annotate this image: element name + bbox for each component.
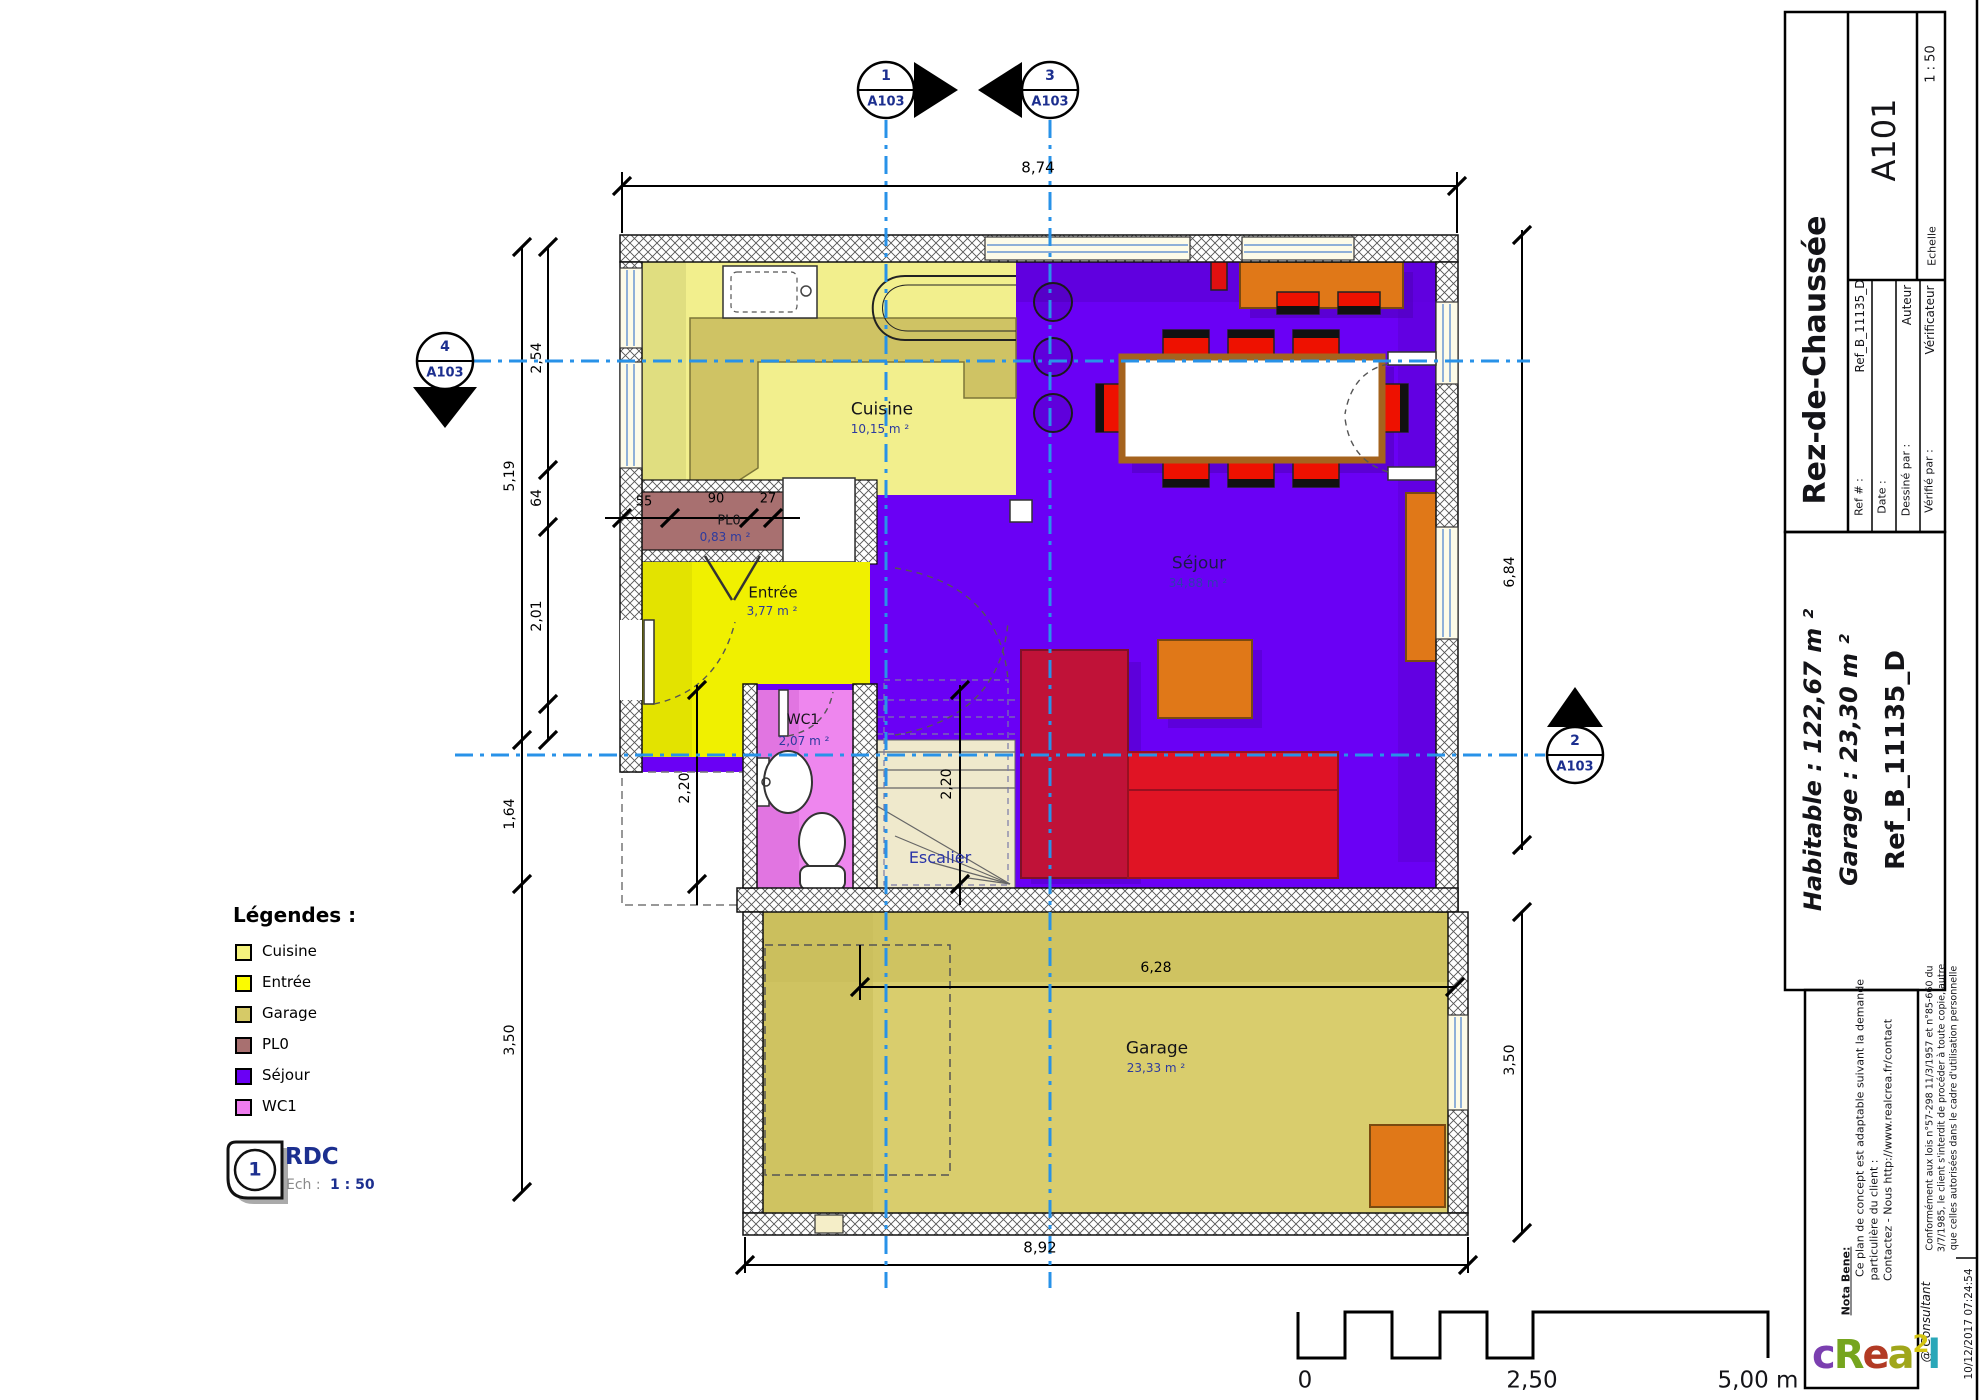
room-area-sejour: 34,88 m ² <box>1169 577 1227 589</box>
logo-letter: R <box>1834 1332 1863 1378</box>
titleblock-checked-value: Vérificateur <box>1924 285 1936 354</box>
scalebar-end: 5,00 m <box>1718 1370 1799 1393</box>
room-label-entree: Entrée <box>748 586 797 601</box>
titleblock-checked-label: Vérifié par : <box>1924 449 1935 513</box>
marker3-number: 3 <box>1045 69 1055 83</box>
crea-logo: cRea2l <box>1812 1330 1939 1378</box>
titleblock-sheet-number: A101 <box>1868 99 1900 182</box>
titleblock-drawn-value: Auteur <box>1901 285 1913 325</box>
marker1-number: 1 <box>881 69 891 83</box>
garage-cabinet <box>1370 1125 1445 1207</box>
titleblock-garage-area: Garage : 23,30 m ² <box>1837 634 1861 886</box>
door-leaf <box>1388 467 1436 480</box>
legend-item-cuisine: Cuisine <box>262 944 317 959</box>
dim-pl0-a: 55 <box>636 496 653 509</box>
scalebar-mid: 2,50 <box>1506 1370 1557 1393</box>
legend-swatch-cuisine <box>235 944 252 961</box>
stamp-title: RDC <box>285 1146 339 1169</box>
dim-left-lower: 1,64 <box>503 798 517 829</box>
drawing-sheet: 8,74 8,92 6,28 55 90 27 6,84 3,50 5,19 1… <box>0 0 1980 1400</box>
nota-line1: Ce plan de concept est adaptable suivant… <box>1855 979 1866 1277</box>
marker4-sheet: A103 <box>426 367 463 380</box>
dim-pl0-b: 90 <box>708 493 725 506</box>
dim-left-garage: 3,50 <box>503 1024 517 1055</box>
scale-bar <box>1298 1312 1768 1358</box>
section-marker-1 <box>858 62 958 118</box>
marker1-sheet: A103 <box>867 96 904 109</box>
dim-hall-depth: 2,20 <box>678 772 692 803</box>
titleblock-floor-title: Rez-de-Chaussée <box>1801 215 1831 504</box>
dim-left-c: 2,01 <box>530 600 544 631</box>
room-label-wc1: WC1 <box>787 713 820 727</box>
dim-stair-depth: 2,20 <box>940 768 954 799</box>
room-area-cuisine: 10,15 m ² <box>851 423 909 435</box>
nota-line2: particulière du client : <box>1869 1160 1880 1281</box>
room-label-pl0: PL0 <box>717 515 740 528</box>
dim-right-garage: 3,50 <box>1503 1044 1517 1075</box>
marker3-sheet: A103 <box>1031 96 1068 109</box>
titleblock-ref-label: Ref # : <box>1854 478 1865 516</box>
room-label-garage: Garage <box>1126 1041 1188 1058</box>
titleblock-scale-label: Echelle <box>1927 226 1938 266</box>
legend-swatch-entree <box>235 975 252 992</box>
titleblock-habitable: Habitable : 122,67 m ² <box>1801 609 1825 911</box>
stamp-number: 1 <box>248 1161 261 1180</box>
legend-swatch-sejour <box>235 1068 252 1085</box>
wc-toilet <box>799 813 845 890</box>
nota-line3: Contactez - Nous http://www.realcrea.fr/… <box>1883 1019 1894 1281</box>
dim-right-main: 6,84 <box>1503 556 1517 587</box>
sofa-chaise <box>1021 650 1128 878</box>
stamp-scale-value: 1 : 50 <box>330 1178 375 1192</box>
door-leaf <box>644 620 654 704</box>
titleblock-date-label: Date : <box>1877 480 1888 514</box>
legal-line2: 3/7/1985, le client s'interdit de procéd… <box>1937 964 1947 1252</box>
legend-item-sejour: Séjour <box>262 1068 310 1083</box>
legend-swatch-garage <box>235 1006 252 1023</box>
kitchen-sink <box>723 266 817 318</box>
legend-swatch-pl0 <box>235 1037 252 1054</box>
legend-item-garage: Garage <box>262 1006 317 1021</box>
legal-line3: que celles autorisées dans le cadre d'ut… <box>1949 966 1959 1250</box>
entree-door-opening <box>620 620 642 700</box>
room-area-pl0: 0,83 m ² <box>700 531 751 543</box>
titleblock-ref-value: Ref_B_11135_D <box>1854 279 1866 372</box>
room-area-garage: 23,33 m ² <box>1127 1062 1185 1074</box>
wall <box>855 480 877 564</box>
legend-swatch-wc1 <box>235 1099 252 1116</box>
legend-item-pl0: PL0 <box>262 1037 289 1052</box>
dim-bottom: 8,92 <box>1023 1241 1056 1256</box>
cooktop <box>1034 283 1072 432</box>
column <box>1010 500 1032 522</box>
fridge-box <box>783 478 855 562</box>
dim-pl0-c: 27 <box>760 493 777 506</box>
room-area-entree: 3,77 m ² <box>747 605 798 617</box>
coffee-table <box>1158 640 1252 718</box>
stamp-scale-label: Ech : <box>286 1178 321 1192</box>
room-label-cuisine: Cuisine <box>851 402 913 419</box>
dim-left-a: 2,54 <box>530 342 544 373</box>
section-marker-3 <box>978 62 1078 118</box>
marker2-sheet: A103 <box>1556 761 1593 774</box>
dim-top: 8,74 <box>1021 161 1054 176</box>
logo-letter: l <box>1927 1332 1939 1378</box>
logo-letter: a <box>1888 1332 1913 1378</box>
dim-left-total: 5,19 <box>503 460 517 491</box>
room-area-wc1: 2,07 m ² <box>779 735 830 747</box>
logo-letter: c <box>1812 1332 1834 1378</box>
dim-garage-width: 6,28 <box>1140 961 1171 975</box>
room-cuisine <box>642 262 1016 512</box>
logo-letter-sup: 2 <box>1913 1330 1928 1358</box>
dining-table <box>1122 357 1382 460</box>
logo-letter: e <box>1863 1332 1888 1378</box>
timestamp: 10/12/2017 07:24:54 <box>1964 1268 1975 1379</box>
titleblock-ref-big: Ref_B_11135_D <box>1883 650 1909 870</box>
marker2-number: 2 <box>1570 734 1580 748</box>
titleblock-drawn-label: Dessiné par : <box>1901 444 1912 516</box>
legal-line1: Conformément aux lois n°57-298 11/3/1957… <box>1925 965 1935 1250</box>
titleblock-scale-value: 1 : 50 <box>1925 45 1938 82</box>
legend-item-entree: Entrée <box>262 975 311 990</box>
door-leaf <box>1388 352 1436 365</box>
legend-item-wc1: WC1 <box>262 1099 297 1114</box>
wc-sink <box>757 751 812 813</box>
legend-title: Légendes : <box>233 905 356 925</box>
dim-left-b: 64 <box>530 489 544 507</box>
room-label-escalier: Escalier <box>909 850 971 866</box>
room-garage <box>745 912 1448 1213</box>
nota-bene-title: Nota Bene: <box>1841 1247 1852 1316</box>
tall-cabinet <box>1406 493 1438 661</box>
sofa <box>1128 752 1338 878</box>
room-label-sejour: Séjour <box>1172 556 1226 573</box>
marker4-number: 4 <box>440 340 450 354</box>
scalebar-zero: 0 <box>1298 1370 1313 1393</box>
